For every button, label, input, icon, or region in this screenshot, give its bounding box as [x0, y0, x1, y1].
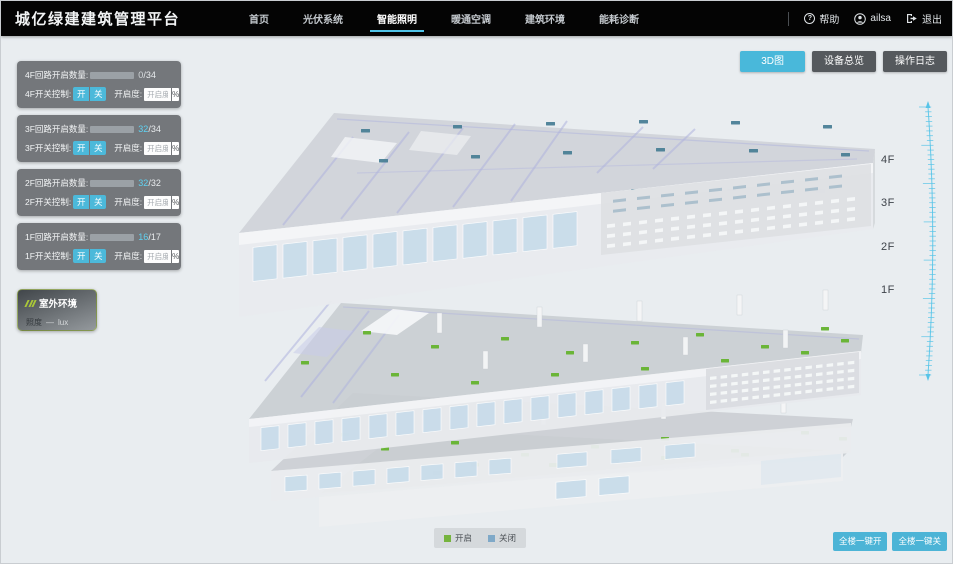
user-avatar-icon — [854, 13, 866, 25]
total-count: /32 — [148, 178, 161, 188]
circuit-count-row: 1F回路开启数量: 16/17 — [25, 231, 173, 243]
dim-level-label: 开启度: — [114, 196, 142, 208]
circuit-count-label: 4F回路开启数量: — [25, 69, 88, 81]
outdoor-env-title-row: 室外环境 — [26, 296, 88, 310]
switch-off-button-3[interactable]: 关 — [90, 249, 106, 263]
open-count: 16 — [138, 232, 148, 242]
switch-control-row: 4F开关控制: 开 关 开启度: % — [25, 87, 173, 101]
main-nav: 首页光伏系统智能照明暖通空调建筑环境能耗诊断 — [232, 1, 656, 36]
total-count: /34 — [148, 124, 161, 134]
floor-panel-1: 3F回路开启数量: 32/34 3F开关控制: 开 关 开启度: % — [17, 115, 181, 162]
switch-on-button-0[interactable]: 开 — [73, 87, 89, 101]
circuit-count-row: 4F回路开启数量: 0/34 — [25, 69, 173, 81]
circuit-progress-bar — [90, 126, 134, 133]
view-toolbar: 3D图设备总览操作日志 — [740, 51, 947, 72]
circuit-count-label: 1F回路开启数量: — [25, 231, 88, 243]
legend-swatch-1 — [488, 535, 495, 542]
nav-item-4[interactable]: 建筑环境 — [508, 1, 582, 36]
view-toolbar-button-0[interactable]: 3D图 — [740, 51, 805, 72]
switch-group: 开 关 — [73, 87, 106, 101]
dim-level-input-1[interactable] — [144, 142, 171, 155]
dim-level-input-3[interactable] — [144, 250, 171, 263]
legend-label-1: 关闭 — [499, 532, 516, 544]
view-toolbar-button-2[interactable]: 操作日志 — [883, 51, 947, 72]
divider — [788, 12, 789, 26]
circuit-count-row: 2F回路开启数量: 32/32 — [25, 177, 173, 189]
dim-level-label: 开启度: — [114, 142, 142, 154]
floor-axis-label-1[interactable]: 3F — [881, 197, 895, 209]
username: ailsa — [870, 13, 891, 24]
nav-item-3[interactable]: 暖通空调 — [434, 1, 508, 36]
switch-group: 开 关 — [73, 141, 106, 155]
circuit-count-value: 32/32 — [138, 178, 161, 188]
nav-item-0[interactable]: 首页 — [232, 1, 286, 36]
open-count: 32 — [138, 178, 148, 188]
logout-icon — [906, 13, 918, 24]
floor-control-panels: 4F回路开启数量: 0/34 4F开关控制: 开 关 开启度: % 3F回路开 — [17, 61, 181, 270]
illuminance-label: 照度 — [26, 317, 42, 328]
lamp-state-legend: 开启 关闭 — [434, 528, 526, 548]
user-area: ? 帮助 ailsa 退出 — [788, 11, 942, 26]
switch-control-row: 2F开关控制: 开 关 开启度: % — [25, 195, 173, 209]
user-menu[interactable]: ailsa — [854, 13, 891, 25]
floor-axis-label-2[interactable]: 2F — [881, 241, 895, 253]
logout-label: 退出 — [922, 11, 942, 26]
floor-ruler-slider[interactable] — [904, 99, 946, 383]
help-button[interactable]: ? 帮助 — [804, 11, 839, 26]
switch-off-button-0[interactable]: 关 — [90, 87, 106, 101]
switch-group: 开 关 — [73, 249, 106, 263]
circuit-count-label: 2F回路开启数量: — [25, 177, 88, 189]
slashes-icon — [26, 300, 35, 307]
illuminance-row: 照度 — lux — [26, 317, 88, 328]
nav-item-1[interactable]: 光伏系统 — [286, 1, 360, 36]
illuminance-value: — — [46, 318, 54, 327]
bulk-controls: 全楼一键开全楼一键关 — [833, 532, 947, 551]
bulk-button-0[interactable]: 全楼一键开 — [833, 532, 888, 551]
illuminance-unit: lux — [58, 318, 68, 327]
total-count: /34 — [143, 70, 156, 80]
dim-percent-button-3[interactable]: % — [172, 250, 179, 263]
top-bar: 城亿绿建建筑管理平台 首页光伏系统智能照明暖通空调建筑环境能耗诊断 ? 帮助 a… — [1, 1, 952, 36]
outdoor-env-title: 室外环境 — [39, 296, 77, 310]
nav-item-5[interactable]: 能耗诊断 — [582, 1, 656, 36]
dim-level-label: 开启度: — [114, 88, 142, 100]
floor-axis-label-0[interactable]: 4F — [881, 154, 895, 166]
floor-panel-2: 2F回路开启数量: 32/32 2F开关控制: 开 关 开启度: % — [17, 169, 181, 216]
logout-button[interactable]: 退出 — [906, 11, 942, 26]
total-count: /17 — [148, 232, 161, 242]
switch-control-label: 2F开关控制: — [25, 196, 71, 208]
app-title: 城亿绿建建筑管理平台 — [15, 8, 180, 29]
view-toolbar-button-1[interactable]: 设备总览 — [812, 51, 876, 72]
dim-level-label: 开启度: — [114, 250, 142, 262]
circuit-count-value: 0/34 — [138, 70, 156, 80]
nav-item-2[interactable]: 智能照明 — [360, 1, 434, 36]
circuit-count-value: 16/17 — [138, 232, 161, 242]
outdoor-env-panel: 室外环境 照度 — lux — [17, 289, 97, 331]
app-root: 城亿绿建建筑管理平台 首页光伏系统智能照明暖通空调建筑环境能耗诊断 ? 帮助 a… — [0, 0, 953, 564]
switch-control-label: 3F开关控制: — [25, 142, 71, 154]
switch-control-label: 1F开关控制: — [25, 250, 71, 262]
circuit-progress-bar — [90, 180, 134, 187]
dim-percent-button-1[interactable]: % — [172, 142, 179, 155]
help-label: 帮助 — [819, 11, 839, 26]
dim-level-input-2[interactable] — [144, 196, 171, 209]
circuit-progress-bar — [90, 72, 134, 79]
circuit-count-label: 3F回路开启数量: — [25, 123, 88, 135]
switch-control-row: 1F开关控制: 开 关 开启度: % — [25, 249, 173, 263]
dim-percent-button-2[interactable]: % — [172, 196, 179, 209]
switch-on-button-1[interactable]: 开 — [73, 141, 89, 155]
dim-level-input-0[interactable] — [144, 88, 171, 101]
circuit-count-value: 32/34 — [138, 124, 161, 134]
switch-control-row: 3F开关控制: 开 关 开启度: % — [25, 141, 173, 155]
floor-axis-label-3[interactable]: 1F — [881, 284, 895, 296]
switch-off-button-1[interactable]: 关 — [90, 141, 106, 155]
legend-item-1: 关闭 — [488, 532, 516, 544]
floor-panel-0: 4F回路开启数量: 0/34 4F开关控制: 开 关 开启度: % — [17, 61, 181, 108]
circuit-progress-bar — [90, 234, 134, 241]
floor-panel-3: 1F回路开启数量: 16/17 1F开关控制: 开 关 开启度: % — [17, 223, 181, 270]
legend-item-0: 开启 — [444, 532, 472, 544]
switch-control-label: 4F开关控制: — [25, 88, 71, 100]
switch-off-button-2[interactable]: 关 — [90, 195, 106, 209]
open-count: 32 — [138, 124, 148, 134]
switch-on-button-3[interactable]: 开 — [73, 249, 89, 263]
switch-on-button-2[interactable]: 开 — [73, 195, 89, 209]
bulk-button-1[interactable]: 全楼一键关 — [892, 532, 947, 551]
switch-group: 开 关 — [73, 195, 106, 209]
help-icon: ? — [804, 13, 815, 24]
legend-swatch-0 — [444, 535, 451, 542]
dim-percent-button-0[interactable]: % — [172, 88, 179, 101]
circuit-count-row: 3F回路开启数量: 32/34 — [25, 123, 173, 135]
legend-label-0: 开启 — [455, 532, 472, 544]
